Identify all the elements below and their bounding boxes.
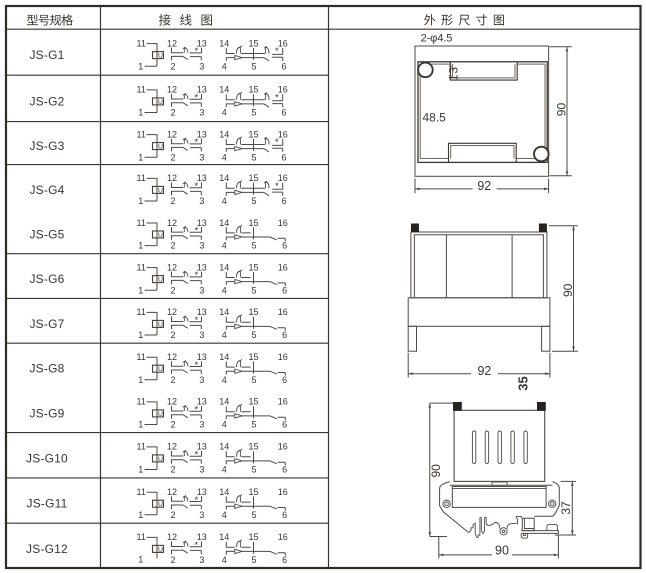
- svg-text:90: 90: [554, 103, 568, 117]
- svg-text:JS-G4: JS-G4: [29, 183, 64, 197]
- svg-text:92: 92: [477, 364, 491, 378]
- svg-text:35: 35: [515, 376, 530, 390]
- svg-text:JS-G7: JS-G7: [29, 317, 64, 331]
- svg-text:JS-G9: JS-G9: [29, 406, 64, 420]
- svg-text:JS-G8: JS-G8: [29, 362, 64, 376]
- svg-text:90: 90: [429, 464, 443, 478]
- svg-text:90: 90: [561, 283, 575, 297]
- svg-text:48.5: 48.5: [423, 110, 447, 124]
- svg-text:13: 13: [447, 66, 461, 81]
- svg-text:JS-G12: JS-G12: [26, 542, 68, 556]
- svg-text:37: 37: [559, 501, 573, 515]
- svg-text:JS-G10: JS-G10: [26, 451, 68, 465]
- svg-text:90: 90: [495, 544, 509, 558]
- svg-text:JS-G5: JS-G5: [29, 227, 64, 241]
- svg-text:JS-G1: JS-G1: [29, 48, 64, 62]
- svg-text:92: 92: [477, 179, 491, 193]
- svg-text:JS-G2: JS-G2: [29, 94, 64, 108]
- svg-text:JS-G11: JS-G11: [27, 497, 68, 511]
- svg-text:2-φ4.5: 2-φ4.5: [421, 33, 453, 45]
- svg-text:JS-G6: JS-G6: [29, 272, 64, 286]
- svg-text:JS-G3: JS-G3: [29, 139, 64, 153]
